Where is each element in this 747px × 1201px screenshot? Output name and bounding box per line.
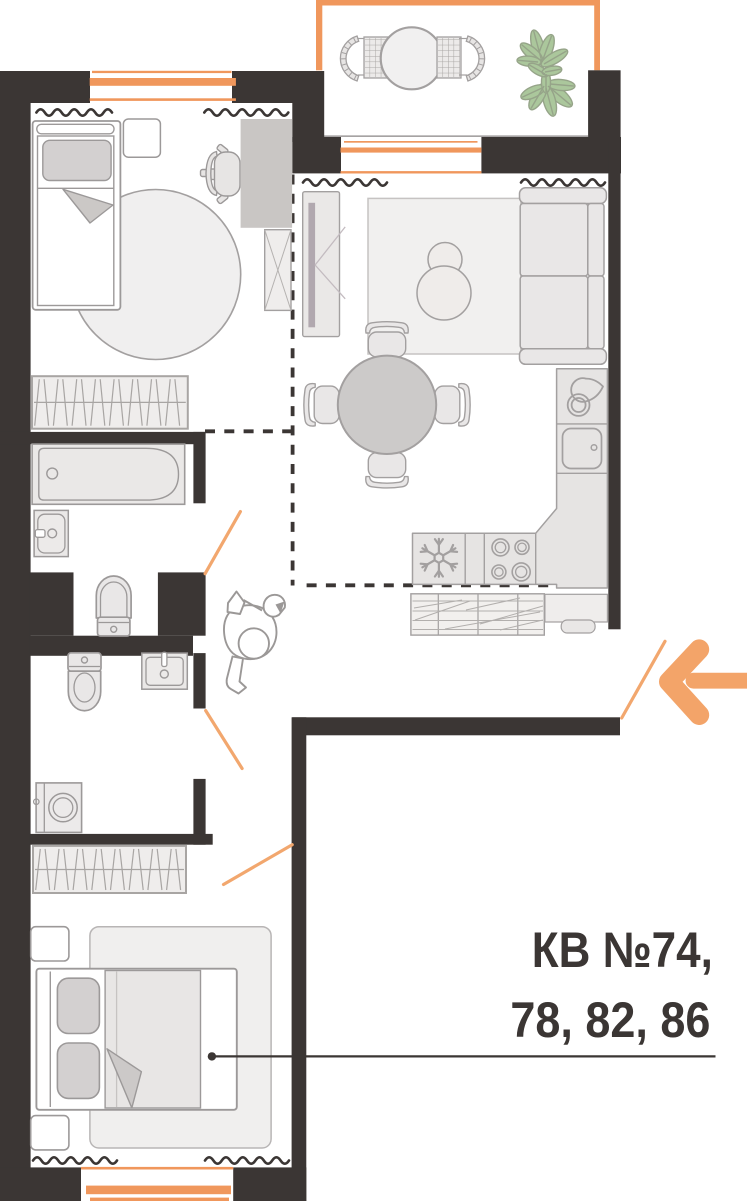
svg-text:78, 82, 86: 78, 82, 86 <box>510 992 710 1048</box>
svg-text:КВ №74,: КВ №74, <box>532 922 713 978</box>
